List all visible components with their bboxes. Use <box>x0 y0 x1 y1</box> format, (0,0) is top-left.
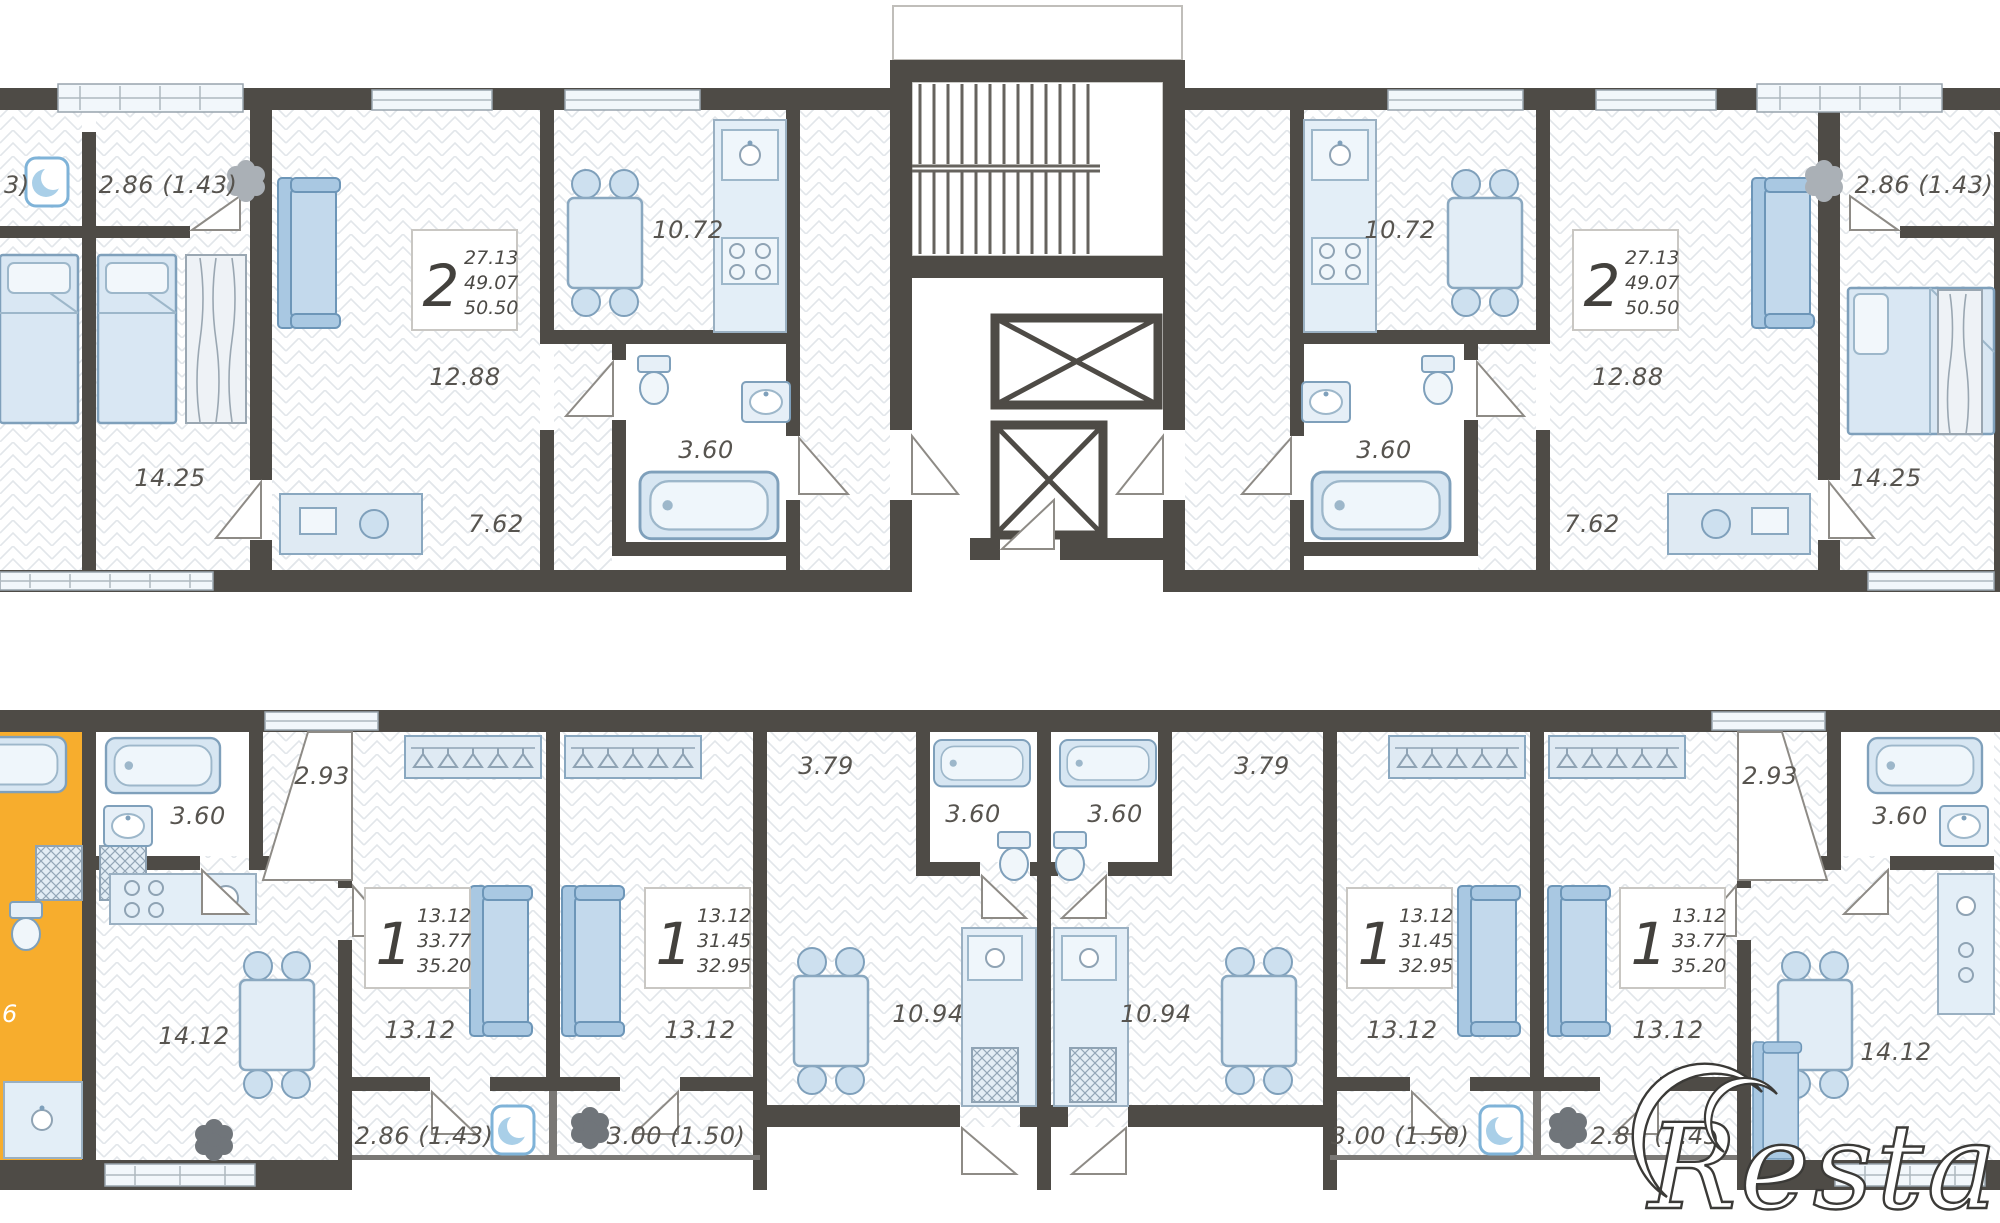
living-area-label: 12.88 <box>1592 363 1663 391</box>
apartment-info-box: 2 27.13 49.07 50.50 <box>412 230 518 330</box>
sofa <box>278 178 340 328</box>
walls-part <box>680 1077 753 1091</box>
bath-area-label: 3.60 <box>678 436 733 464</box>
walls-part <box>1818 540 1840 570</box>
apartment-rooms-label: 1 <box>376 910 413 978</box>
kitchen-counter <box>110 874 256 924</box>
bathtub <box>1060 740 1156 786</box>
walls-part <box>1337 1077 1410 1091</box>
walls-part <box>1128 1105 1323 1127</box>
bedroom-area-label: 14.25 <box>134 464 205 492</box>
living-area-value: 13.12 <box>417 905 471 927</box>
apartment-rooms-label: 1 <box>1631 910 1668 978</box>
walls-part <box>250 540 272 570</box>
walls-part <box>338 940 352 1190</box>
kitchen-counter-part <box>1070 1048 1116 1102</box>
staircase-part <box>912 82 1163 256</box>
desk-part <box>360 510 388 538</box>
staircase <box>912 82 1163 256</box>
bed-double-part <box>1854 294 1888 354</box>
kitchen-counter <box>714 120 786 332</box>
walls-part <box>1470 1077 1600 1091</box>
walls-part <box>1037 1105 1051 1190</box>
walls-part <box>1737 880 1751 888</box>
total-area-value: 50.50 <box>1625 297 1679 319</box>
total-area-value: 32.95 <box>1399 955 1453 977</box>
bed <box>98 255 176 423</box>
apartment-rooms-label: 2 <box>1584 252 1621 320</box>
walls-part <box>1533 1091 1541 1157</box>
total-area-value: 50.50 <box>464 297 518 319</box>
door-swings-part <box>912 436 958 494</box>
floor-plan: 3) 2.86 (1.43) 14.25 2 27.13 49.07 50.50… <box>0 0 2000 1223</box>
loggia-area-label: 2.93 <box>1742 762 1797 790</box>
kitchen-area-label: 10.94 <box>1120 1000 1191 1028</box>
bath-area-label: 3.60 <box>1872 802 1927 830</box>
walls-part <box>753 1105 767 1190</box>
main-area-value: 49.07 <box>464 272 518 294</box>
living-area-label: 12.88 <box>429 363 500 391</box>
wardrobe <box>1938 290 1982 434</box>
stove-icon <box>1312 238 1368 284</box>
sofa <box>1458 886 1520 1036</box>
window <box>372 90 492 110</box>
door-swings-part <box>1117 436 1163 494</box>
walls-part <box>1323 732 1337 1105</box>
balcony-area-label: 3.00 (1.50) <box>607 1122 746 1150</box>
bath-area-label: 3.60 <box>945 800 1000 828</box>
walls-part <box>612 344 626 360</box>
sink <box>742 382 790 422</box>
main-area-value: 31.45 <box>1399 930 1453 952</box>
walls-part <box>612 542 800 556</box>
walls-part <box>1060 538 1185 560</box>
apartment-info-box: 1 13.12 33.77 35.20 <box>1620 888 1726 988</box>
walls-part <box>890 278 912 430</box>
floor-plan-canvas: 3) 2.86 (1.43) 14.25 2 27.13 49.07 50.50… <box>0 0 2000 1223</box>
room-area-label: 13.12 <box>1632 1016 1703 1044</box>
main-area-value: 33.77 <box>417 930 471 952</box>
walls-part <box>1158 732 1172 876</box>
balcony-logo-icon <box>492 1106 534 1154</box>
balcony-logo-icon <box>26 158 68 206</box>
room-area-label: 13.12 <box>1366 1016 1437 1044</box>
balcony-area-label: 2.86 (1.43) <box>99 171 238 199</box>
balcony-area-label: 3.00 (1.50) <box>1331 1122 1470 1150</box>
wardrobe <box>565 736 701 778</box>
desk <box>1668 494 1810 554</box>
sofa <box>470 886 532 1036</box>
wardrobe-part <box>1938 290 1982 434</box>
window <box>0 572 213 590</box>
walls-part <box>1464 420 1478 556</box>
sofa <box>562 886 624 1036</box>
walls-part <box>1530 732 1544 1077</box>
elevator-1 <box>995 318 1158 405</box>
washing-machine <box>36 846 82 900</box>
kitchen-counter-part <box>1080 949 1098 967</box>
bathtub <box>640 472 778 539</box>
walls-part <box>890 256 1185 278</box>
balcony-glazing <box>1757 84 1942 112</box>
wardrobe <box>1549 736 1685 778</box>
sink <box>104 806 152 846</box>
walls-part <box>1020 1105 1037 1127</box>
room-area-label: 13.12 <box>664 1016 735 1044</box>
walls-part <box>82 132 96 570</box>
window <box>1596 90 1716 110</box>
total-area-value: 35.20 <box>417 955 471 977</box>
bath-area-label: 3.60 <box>170 802 225 830</box>
balcony-logo-icon <box>1480 1106 1522 1154</box>
walls-part <box>1536 430 1550 570</box>
walls-part <box>352 1155 760 1160</box>
apartment-info-box: 1 13.12 31.45 32.95 <box>1347 888 1453 988</box>
kitchen-counter-part <box>32 1110 52 1130</box>
apartment-info-box: 2 27.13 49.07 50.50 <box>1573 230 1679 330</box>
stove-icon-part <box>1312 238 1368 284</box>
walls-part <box>1827 732 1841 870</box>
hall-area-label: 7.62 <box>468 510 523 538</box>
living-area-value: 13.12 <box>1672 905 1726 927</box>
walls-part <box>890 60 912 278</box>
desk-part <box>1702 510 1730 538</box>
wardrobe <box>405 736 541 778</box>
kitchen-area-label: 10.72 <box>652 216 723 244</box>
desk <box>280 494 422 554</box>
apartment-rooms-label: 1 <box>1358 910 1395 978</box>
apartment-info-box: 1 13.12 33.77 35.20 <box>365 888 471 988</box>
loggia-window <box>1712 712 1825 730</box>
living-area-value: 27.13 <box>1625 247 1679 269</box>
kitchen-counter <box>4 1082 82 1158</box>
toilet <box>1422 356 1454 404</box>
apartment-rooms-label: 2 <box>423 252 460 320</box>
total-area-value: 32.95 <box>697 955 751 977</box>
walls-part <box>916 732 930 876</box>
living-area-value: 13.12 <box>697 905 751 927</box>
living-area-value: 27.13 <box>464 247 518 269</box>
walls-part <box>546 732 560 1077</box>
walls-part <box>890 60 1185 82</box>
sofa <box>1548 886 1610 1036</box>
balcony-area-label: 2.86 (1.43) <box>1855 171 1994 199</box>
walls-part <box>338 880 352 888</box>
walls-part <box>82 732 96 1190</box>
walls-part <box>249 732 263 870</box>
window <box>1388 90 1523 110</box>
window <box>105 1164 255 1186</box>
balcony-label-partial: 3) <box>4 171 30 199</box>
walls-part <box>549 1091 557 1157</box>
sink <box>1940 806 1988 846</box>
main-area-value: 31.45 <box>697 930 751 952</box>
bath-area-label: 3.60 <box>1087 800 1142 828</box>
kitchen-area-label: 10.94 <box>892 1000 963 1028</box>
desk-part <box>300 508 336 534</box>
kitchen-counter-part <box>972 1048 1018 1102</box>
kitchen-living-area-label: 14.12 <box>1860 1038 1931 1066</box>
bed <box>0 255 78 423</box>
toilet <box>10 902 42 950</box>
shaft-outline <box>893 6 1182 60</box>
walls-part <box>540 430 554 570</box>
floor-hatching-part <box>1185 110 1290 570</box>
room-area-label: 13.12 <box>384 1016 455 1044</box>
walls-part <box>1051 1105 1068 1127</box>
balcony-glazing <box>58 84 243 112</box>
kitchen-counter-part <box>40 1106 45 1111</box>
wardrobe <box>186 255 246 423</box>
kitchen-counter <box>1938 874 1994 1014</box>
kitchen-counter <box>1054 928 1128 1106</box>
walls-part <box>1900 226 2000 238</box>
walls-part <box>1890 856 1994 870</box>
bathtub <box>1312 472 1450 539</box>
window <box>565 90 700 110</box>
walls-part <box>890 500 912 592</box>
walls-part <box>1037 732 1051 1105</box>
wardrobe <box>1389 736 1525 778</box>
kitchen-counter <box>962 928 1036 1106</box>
loggia-window <box>265 712 378 730</box>
sink <box>1302 382 1350 422</box>
bathtub <box>0 737 66 792</box>
bathtub <box>106 738 220 793</box>
sofa <box>1752 178 1814 328</box>
balcony-area-label: 2.86 (1.43) <box>355 1122 494 1150</box>
hall-area-label: 7.62 <box>1564 510 1619 538</box>
kitchen-living-area-label: 14.12 <box>158 1022 229 1050</box>
total-area-value: 35.20 <box>1672 955 1726 977</box>
kitchen-counter-part <box>1330 145 1350 165</box>
stove-icon <box>722 238 778 284</box>
walls-part <box>1536 110 1550 344</box>
walls-part <box>767 1105 960 1127</box>
kitchen-counter-part <box>740 145 760 165</box>
kitchen-counter-part <box>1957 897 1975 915</box>
kitchen-area-label: 10.72 <box>1364 216 1435 244</box>
bath-area-label: 3.60 <box>1356 436 1411 464</box>
loggia-area-label: 2.93 <box>294 762 349 790</box>
walls-part <box>490 1077 620 1091</box>
bathtub <box>934 740 1030 786</box>
hall-area-label: 3.79 <box>798 752 853 780</box>
watermark-text: Restate <box>1646 1098 2000 1223</box>
window <box>1868 572 1994 590</box>
walls-part <box>1290 542 1478 556</box>
bathtub <box>1868 738 1982 793</box>
walls-part <box>352 1077 430 1091</box>
walls-part <box>786 500 800 570</box>
hall-area-label: 3.79 <box>1234 752 1289 780</box>
stove-icon-part <box>722 238 778 284</box>
kitchen-counter-part <box>748 141 753 146</box>
walls-part <box>1163 60 1185 430</box>
floor-hatching-part <box>800 110 890 570</box>
bedroom-area-label: 14.25 <box>1850 464 1921 492</box>
walls-part <box>540 110 554 344</box>
kitchen-counter-part <box>1338 141 1343 146</box>
walls-part <box>916 862 980 876</box>
highlighted-unit-label-partial: 6 <box>2 1000 17 1028</box>
main-area-value: 49.07 <box>1625 272 1679 294</box>
apartment-rooms-label: 1 <box>656 910 693 978</box>
walls-part <box>1290 500 1304 570</box>
kitchen-counter-part <box>986 949 1004 967</box>
desk-part <box>1752 508 1788 534</box>
apartment-info-box: 1 13.12 31.45 32.95 <box>645 888 751 988</box>
walls-part <box>753 732 767 1105</box>
toilet <box>998 832 1030 880</box>
toilet <box>638 356 670 404</box>
living-area-value: 13.12 <box>1399 905 1453 927</box>
walls-part <box>612 420 626 556</box>
main-area-value: 33.77 <box>1672 930 1726 952</box>
toilet <box>1054 832 1086 880</box>
walls-part <box>1464 344 1478 360</box>
walls-part <box>970 538 1000 560</box>
walls-part <box>0 226 190 238</box>
walls-part <box>1037 862 1058 876</box>
